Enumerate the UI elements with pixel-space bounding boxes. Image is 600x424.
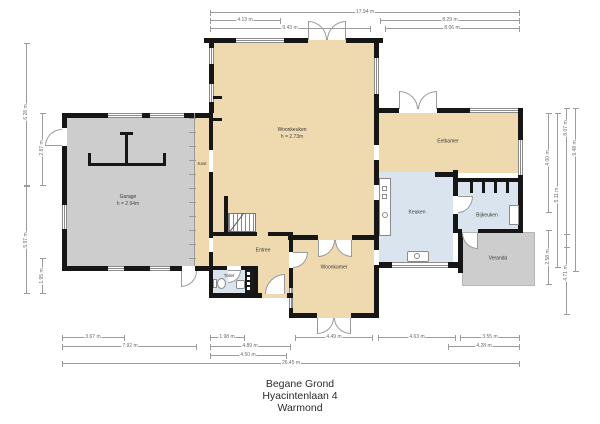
door-arc: [317, 318, 334, 334]
wall: [374, 108, 399, 113]
dimension-label: 2.87 m: [39, 139, 45, 156]
room-label-kast: Kast: [197, 161, 206, 167]
door-arc: [418, 91, 437, 109]
window: [108, 266, 124, 271]
room-label-woonkamer: Woonkamer: [321, 265, 348, 272]
dimension-label: 4.63 m: [408, 334, 425, 340]
window: [470, 108, 518, 113]
door-opening: [374, 250, 379, 265]
dimension-label: 4.28 m: [475, 343, 492, 349]
door-arc: [327, 21, 346, 40]
dimension-label: 4.00 m: [545, 149, 551, 166]
wall-stub: [482, 182, 485, 193]
wall-stub: [213, 96, 222, 99]
dimension-label: 4.13 m: [236, 17, 253, 23]
dimension-label: 4.71 m: [563, 264, 569, 281]
meter-cabinet: [245, 270, 254, 293]
room-garage: [62, 113, 195, 271]
meter-icon: [247, 282, 250, 285]
window: [236, 38, 284, 43]
window: [108, 113, 142, 118]
door-arc: [308, 21, 327, 40]
room-label-bijkeuken: Bijkeuken: [476, 213, 498, 220]
room-label-garage: Garage h = 2.94m: [117, 194, 139, 208]
door-opening: [209, 150, 213, 172]
meter-icon: [247, 277, 250, 280]
wall: [268, 232, 293, 236]
wall: [458, 178, 523, 182]
window: [518, 140, 523, 175]
garage-fixture: [88, 163, 166, 166]
dimension-label: 1.95 m: [39, 267, 45, 284]
window: [150, 266, 170, 271]
dimension-label: 8.29 m: [441, 17, 458, 23]
wall: [209, 232, 257, 236]
title-floor: Begane Grond: [0, 378, 600, 390]
window: [150, 113, 184, 118]
plan-title: Begane Grond Hyacintenlaan 4 Warmond: [0, 378, 600, 414]
stair-cut-line: [229, 213, 244, 233]
room-label-keuken: Keuken: [409, 210, 426, 217]
dimension-label: 3.67 m: [84, 334, 101, 340]
door-arc: [334, 318, 351, 334]
title-city: Warmond: [0, 402, 600, 414]
wall: [287, 293, 293, 298]
wall-stub: [470, 182, 473, 193]
window: [374, 58, 379, 94]
dimension-label: 3.55 m: [481, 334, 498, 340]
wall: [435, 172, 453, 177]
dimension-label: 4.50 m: [239, 352, 256, 358]
wall: [209, 293, 262, 298]
wall: [448, 262, 463, 268]
dimension-label: 5.97 m: [23, 231, 29, 248]
dimension-label: 4.49 m: [325, 334, 342, 340]
garage-fixture: [88, 153, 91, 166]
window: [209, 48, 214, 64]
kitchen-sink-icon: [382, 212, 388, 218]
door-arc: [181, 271, 197, 287]
dimension-label: 1.98 m: [218, 334, 235, 340]
garage-fixture: [125, 134, 128, 166]
door-opening: [62, 128, 67, 146]
window: [289, 288, 293, 308]
dimension-label: 8.06 m: [443, 25, 460, 31]
room-label-veranda: Veranda: [489, 256, 508, 263]
meter-icon: [247, 287, 250, 290]
cooktop: [382, 186, 387, 191]
meter-icon: [247, 272, 250, 275]
room-kast: [195, 113, 209, 271]
wall-line: [194, 113, 195, 271]
washbasin: [236, 280, 245, 289]
dimension-label: 4.89 m: [241, 343, 258, 349]
garage-fixture: [163, 153, 166, 166]
wall-stub: [506, 182, 509, 193]
wall-stub: [494, 182, 497, 193]
room-label-woonkeuken: Woonkeuken h = 2.73m: [277, 127, 306, 141]
room-label-eetkamer: Eetkamer: [437, 139, 458, 146]
door-arc: [45, 129, 62, 146]
dimension-label: 9.43 m: [281, 25, 298, 31]
door-arc: [399, 91, 418, 109]
dimension-label: 5.11 m: [554, 187, 560, 204]
window: [209, 84, 214, 102]
room-label-toilet: Toilet: [224, 273, 235, 279]
title-street: Hyacintenlaan 4: [0, 390, 600, 402]
dimension-line: [575, 108, 576, 272]
staircase: [228, 213, 256, 232]
wall: [478, 229, 523, 233]
window: [392, 262, 448, 268]
wall: [209, 113, 213, 240]
wall: [351, 313, 379, 318]
window: [62, 205, 67, 229]
wall: [284, 38, 308, 43]
floor-plan: Garage h = 2.94m Kast Woonkeuken h = 2.7…: [0, 0, 600, 424]
wall: [195, 266, 209, 271]
door-opening: [374, 145, 379, 160]
dimension-label: 9.48 m: [572, 139, 578, 156]
toilet-bowl: [217, 278, 226, 289]
garage-fixture: [120, 132, 133, 135]
door-opening: [209, 238, 213, 252]
wall: [437, 108, 470, 113]
dimension-label: 17.94 m: [355, 9, 375, 15]
cooktop: [382, 194, 387, 199]
dimension-label: 7.92 m: [121, 343, 138, 349]
dimension-label: 8.07 m: [563, 119, 569, 136]
dimension-label: 2.58 m: [545, 248, 551, 265]
wall-stub: [213, 118, 222, 121]
room-label-entree: Entree: [256, 248, 271, 255]
cabinet: [509, 205, 519, 225]
sink-icon: [414, 253, 420, 259]
wall: [289, 313, 317, 318]
dimension-label: 26.45 m: [281, 360, 301, 366]
dimension-label: 6.28 m: [23, 103, 29, 120]
door-opening: [182, 266, 195, 271]
